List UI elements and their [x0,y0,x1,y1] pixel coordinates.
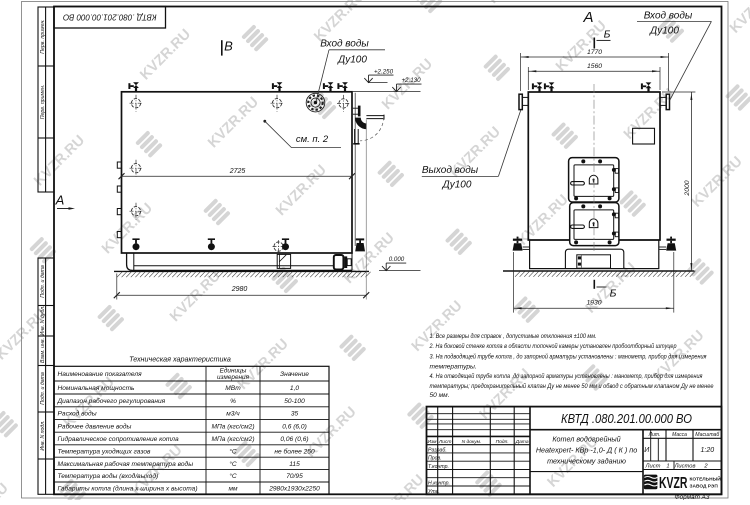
svg-text:Масштаб: Масштаб [695,432,719,438]
svg-text:Подп.: Подп. [496,439,509,445]
svg-text:Номинальная мощность: Номинальная мощность [58,385,136,392]
svg-text:0,6 (6,0): 0,6 (6,0) [282,423,307,430]
svg-text:Инв. N дубл.: Инв. N дубл. [40,305,46,335]
svg-text:Ду100: Ду100 [649,25,679,36]
svg-text:Б: Б [604,29,611,41]
svg-text:+2.130: +2.130 [401,77,421,84]
svg-text:А: А [582,9,593,26]
svg-text:техническому заданию: техническому заданию [547,457,626,466]
svg-text:Вход воды: Вход воды [644,11,693,22]
svg-text:Масса: Масса [672,432,687,438]
svg-text:мм: мм [228,486,238,493]
svg-text:1770: 1770 [587,49,602,56]
svg-text:Ду100: Ду100 [442,180,472,191]
svg-text:Техническая характеристика: Техническая характеристика [129,355,231,364]
svg-text:Изм: Изм [427,439,437,445]
svg-text:35: 35 [291,411,299,418]
svg-text:МВт: МВт [225,385,241,392]
svg-text:Перв. примен.: Перв. примен. [40,85,46,119]
svg-text:Максимальная рабочая температу: Максимальная рабочая температура воды [58,460,194,468]
svg-text:1:20: 1:20 [700,447,714,454]
svg-text:А: А [55,193,65,208]
svg-text:2000: 2000 [684,180,691,196]
svg-text:Котел водогрейный: Котел водогрейный [552,435,620,444]
svg-text:3. На подводящей трубе котла: 3. На подводящей трубе котла , до запорн… [430,353,707,361]
svg-text:1560: 1560 [587,63,602,70]
svg-text:МПа (кгс/см2): МПа (кгс/см2) [211,436,254,443]
svg-text:Формат А3: Формат А3 [675,494,710,500]
svg-text:70/95: 70/95 [286,473,303,480]
svg-text:Вход воды: Вход воды [320,38,369,49]
svg-text:Габариты котла (длина х ширина: Габариты котла (длина х ширина х высота) [58,485,198,493]
svg-text:Лист: Лист [645,464,661,470]
svg-text:°С: °С [229,460,237,468]
svg-text:Листов: Листов [673,464,695,470]
svg-text:1,0: 1,0 [290,385,299,392]
svg-text:0.000: 0.000 [389,256,405,263]
svg-text:115: 115 [289,461,300,468]
svg-text:В: В [224,39,233,54]
svg-text:0,06 (0,6): 0,06 (0,6) [280,436,308,443]
svg-text:Выход воды: Выход воды [422,165,479,176]
svg-text:Подп. и дата: Подп. и дата [40,372,46,405]
svg-text:Инв. N подл.: Инв. N подл. [40,420,46,450]
svg-text:КВТД .080.201.00.000 ВО: КВТД .080.201.00.000 ВО [561,411,692,426]
svg-text:Утв.: Утв. [428,489,440,495]
svg-text:измерения: измерения [217,374,250,381]
svg-text:1: 1 [666,464,669,470]
svg-text:Рабочее давление воды: Рабочее давление воды [58,422,132,430]
svg-text:Ду100: Ду100 [337,54,367,65]
svg-text:2980х1930х2250: 2980х1930х2250 [268,486,320,493]
svg-text:Температура уходящих газов: Температура уходящих газов [58,447,151,455]
svg-text:Т.контр.: Т.контр. [428,464,449,470]
svg-text:+2.250: +2.250 [374,68,394,75]
svg-text:Н.контр.: Н.контр. [428,481,450,487]
svg-text:°С: °С [229,447,237,455]
svg-text:1. Все размеры для справок ,: 1. Все размеры для справок , допустимые … [430,332,597,340]
svg-text:Б: Б [610,287,617,299]
svg-text:°С: °С [229,472,237,480]
svg-text:Пров.: Пров. [428,456,442,462]
svg-text:температуры.: температуры. [430,364,477,371]
svg-text:%: % [230,398,236,405]
svg-text:температуры; предохранительны: температуры; предохранительный клапан Ду… [430,382,714,390]
svg-text:КВТД .080.201.00.000 ВО: КВТД .080.201.00.000 ВО [63,13,157,22]
svg-text:Температура воды (вход/выход): Температура воды (вход/выход) [58,472,159,480]
svg-text:Наименование показателя: Наименование показателя [58,371,143,378]
svg-text:м3/ч: м3/ч [226,411,240,418]
svg-text:Разраб.: Разраб. [428,447,447,453]
svg-text:1930: 1930 [586,300,601,307]
svg-text:ЗАВОД РЭП: ЗАВОД РЭП [690,484,719,490]
svg-text:Лист: Лист [438,439,452,445]
svg-text:50 мм.: 50 мм. [430,392,450,399]
svg-text:Подп. и дата: Подп. и дата [40,265,46,298]
svg-text:Лит.: Лит. [648,432,661,438]
svg-text:не более 250: не более 250 [274,447,315,455]
svg-text:50-100: 50-100 [284,398,305,405]
svg-text:Расход воды: Расход воды [58,410,97,418]
svg-text:Взам. инв.: Взам. инв. [40,338,46,363]
svg-text:2725: 2725 [229,168,246,175]
svg-text:Heatexpert- КВр -1,0- Д ( К ): Heatexpert- КВр -1,0- Д ( К ) по [536,446,637,455]
svg-text:см. п. 2: см. п. 2 [296,134,329,145]
svg-text:4. На отводящей трубе котла ,: 4. На отводящей трубе котла ,до запорной… [430,372,703,380]
svg-text:Гидравлическое сопротивление к: Гидравлическое сопротивление котла [58,435,179,443]
svg-text:МПа (кгс/см2): МПа (кгс/см2) [211,423,254,430]
svg-text:Дата: Дата [515,439,529,445]
svg-text:Значение: Значение [280,371,309,378]
svg-text:Перв. примен.: Перв. примен. [40,19,46,53]
svg-text:N докум.: N докум. [462,439,482,445]
svg-text:2. На боковой стенке котла в: 2. На боковой стенке котла в области топ… [429,342,677,350]
svg-text:2980: 2980 [231,286,248,293]
svg-text:Диапазон рабочего регулировани: Диапазон рабочего регулирования [57,397,166,405]
svg-text:KVZR: KVZR [659,475,688,492]
